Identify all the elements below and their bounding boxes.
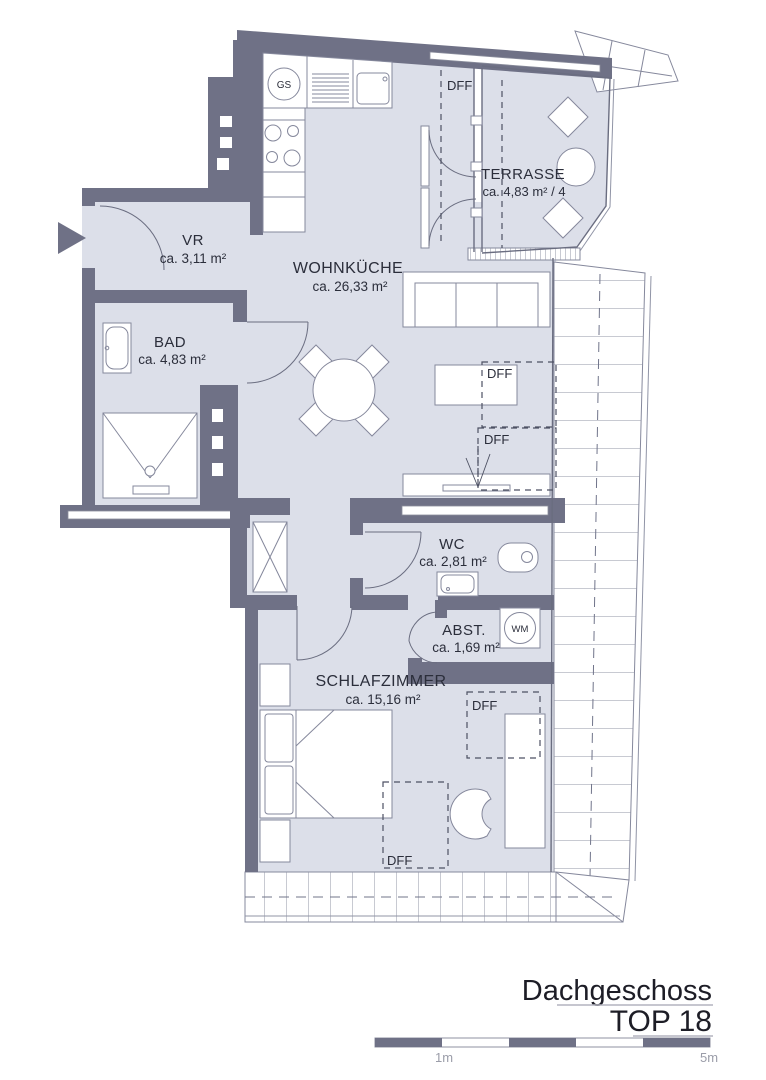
window-band-bad [68,511,244,519]
roof-band-right-hatch [554,276,645,880]
room-area-terrasse: ca. 4,83 m² / 4 [482,184,565,199]
entrance-arrow-icon [58,222,86,254]
wall-bad-east-upper [233,303,247,322]
desk-icon [505,714,545,848]
room-area-abst: ca. 1,69 m² [432,640,500,655]
glass-mullion [471,116,482,125]
dff-label: DFF [447,78,472,93]
room-area-wohnkueche: ca. 26,33 m² [312,279,388,294]
dff-label: DFF [387,853,412,868]
unit-title: TOP 18 [610,1005,712,1038]
dff-label: DFF [487,366,512,381]
wall-niche [212,463,223,476]
room-label-terrasse: TERRASSE [481,166,565,183]
washing-machine-label: WM [512,624,529,635]
room-area-vr: ca. 3,11 m² [160,251,227,266]
scale-5m-label: 5m [700,1050,718,1065]
dff-label: DFF [484,432,509,447]
room-label-abst: ABST. [442,622,486,639]
wall-niche [217,158,229,170]
wall-niche [212,436,223,449]
wall-abst-stub [435,600,447,618]
floorplan-page: VR ca. 3,11 m² BAD ca. 4,83 m² WOHNKÜCHE… [0,0,766,1080]
wall-chimney [208,77,263,202]
scale-bar: 1m 5m [375,1038,718,1065]
wall-vr-top [82,188,233,202]
scale-bar-segment [509,1038,576,1047]
scale-bar-segment [375,1038,442,1047]
room-label-schlafzimmer: SCHLAFZIMMER [315,673,446,690]
wc-washbasin-bowl [441,575,474,593]
floor-title: Dachgeschoss [522,975,712,1007]
pillow-icon [265,766,293,814]
wall-vr-kitchen-stub [250,202,263,235]
nightstand-icon [260,664,290,706]
nightstand-icon [260,820,290,862]
terrace-door-leaf [421,126,429,186]
shower-drain [133,486,169,494]
wall-corridor-north [230,498,290,515]
wall-niche [212,409,223,422]
wall-bedroom-west [245,608,258,872]
room-label-vr: VR [182,232,204,249]
toilet-flush-icon [522,552,533,563]
kitchen-counter-left [263,108,305,232]
room-area-bad: ca. 4,83 m² [138,352,206,367]
floorplan-drawing: VR ca. 3,11 m² BAD ca. 4,83 m² WOHNKÜCHE… [0,0,766,1080]
dff-label: DFF [472,698,497,713]
window-band-living-south [402,506,548,515]
bad-washbasin-bowl [106,327,128,369]
shower-icon [103,413,197,498]
wall-niche [220,137,232,148]
wall-wc-west-stub-top [350,523,363,535]
terrace-door-leaf [421,188,429,248]
wall-vr-bottom [88,290,247,303]
room-area-wc: ca. 2,81 m² [419,554,487,569]
installation-shaft-icon [253,522,287,592]
dishwasher-label: GS [277,80,292,91]
shower-head-icon [145,466,155,476]
sofa-seat [415,283,538,327]
pillow-icon [265,714,293,762]
room-area-schlafzimmer: ca. 15,16 m² [345,692,421,707]
wall-bedroom-north-west [245,595,297,610]
wall-chimney-top [233,40,263,80]
tv-icon [443,485,510,491]
room-label-bad: BAD [154,334,186,351]
wall-bedroom-north-mid [352,595,408,610]
wall-niche [220,116,232,127]
scale-1m-label: 1m [435,1050,453,1065]
wall-outer-left [82,268,95,528]
wall-outer-left-upper [82,188,95,206]
room-label-wc: WC [439,536,465,553]
scale-bar-segment [643,1038,710,1047]
dining-table-icon [313,359,375,421]
title-block: Dachgeschoss TOP 18 [522,975,713,1038]
glass-mullion [471,208,482,217]
room-label-wohnkueche: WOHNKÜCHE [293,259,403,277]
